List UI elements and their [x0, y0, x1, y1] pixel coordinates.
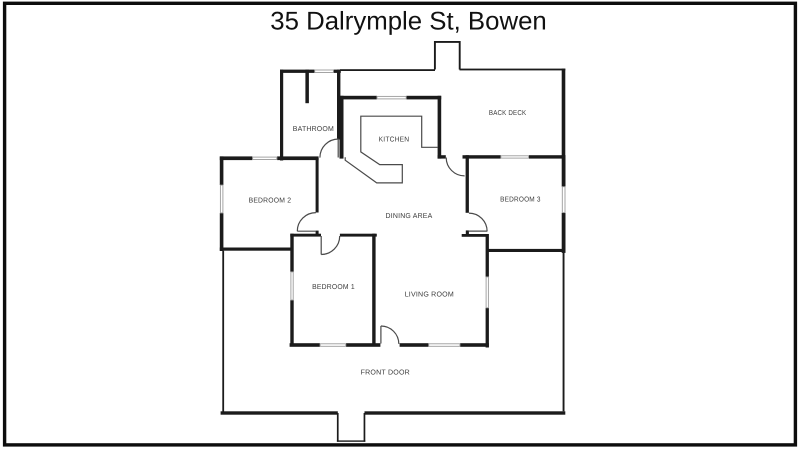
svg-text:BEDROOM 3: BEDROOM 3: [500, 196, 541, 204]
svg-text:DINING AREA: DINING AREA: [386, 212, 433, 220]
svg-text:LIVING ROOM: LIVING ROOM: [405, 291, 454, 299]
svg-text:BEDROOM 1: BEDROOM 1: [312, 283, 355, 291]
svg-text:FRONT DOOR: FRONT DOOR: [361, 369, 410, 377]
svg-text:35 Dalrymple St, Bowen: 35 Dalrymple St, Bowen: [270, 7, 547, 35]
svg-text:BATHROOM: BATHROOM: [293, 125, 334, 133]
svg-text:BACK DECK: BACK DECK: [489, 109, 526, 117]
svg-text:KITCHEN: KITCHEN: [379, 135, 410, 143]
svg-text:BEDROOM 2: BEDROOM 2: [249, 196, 292, 204]
